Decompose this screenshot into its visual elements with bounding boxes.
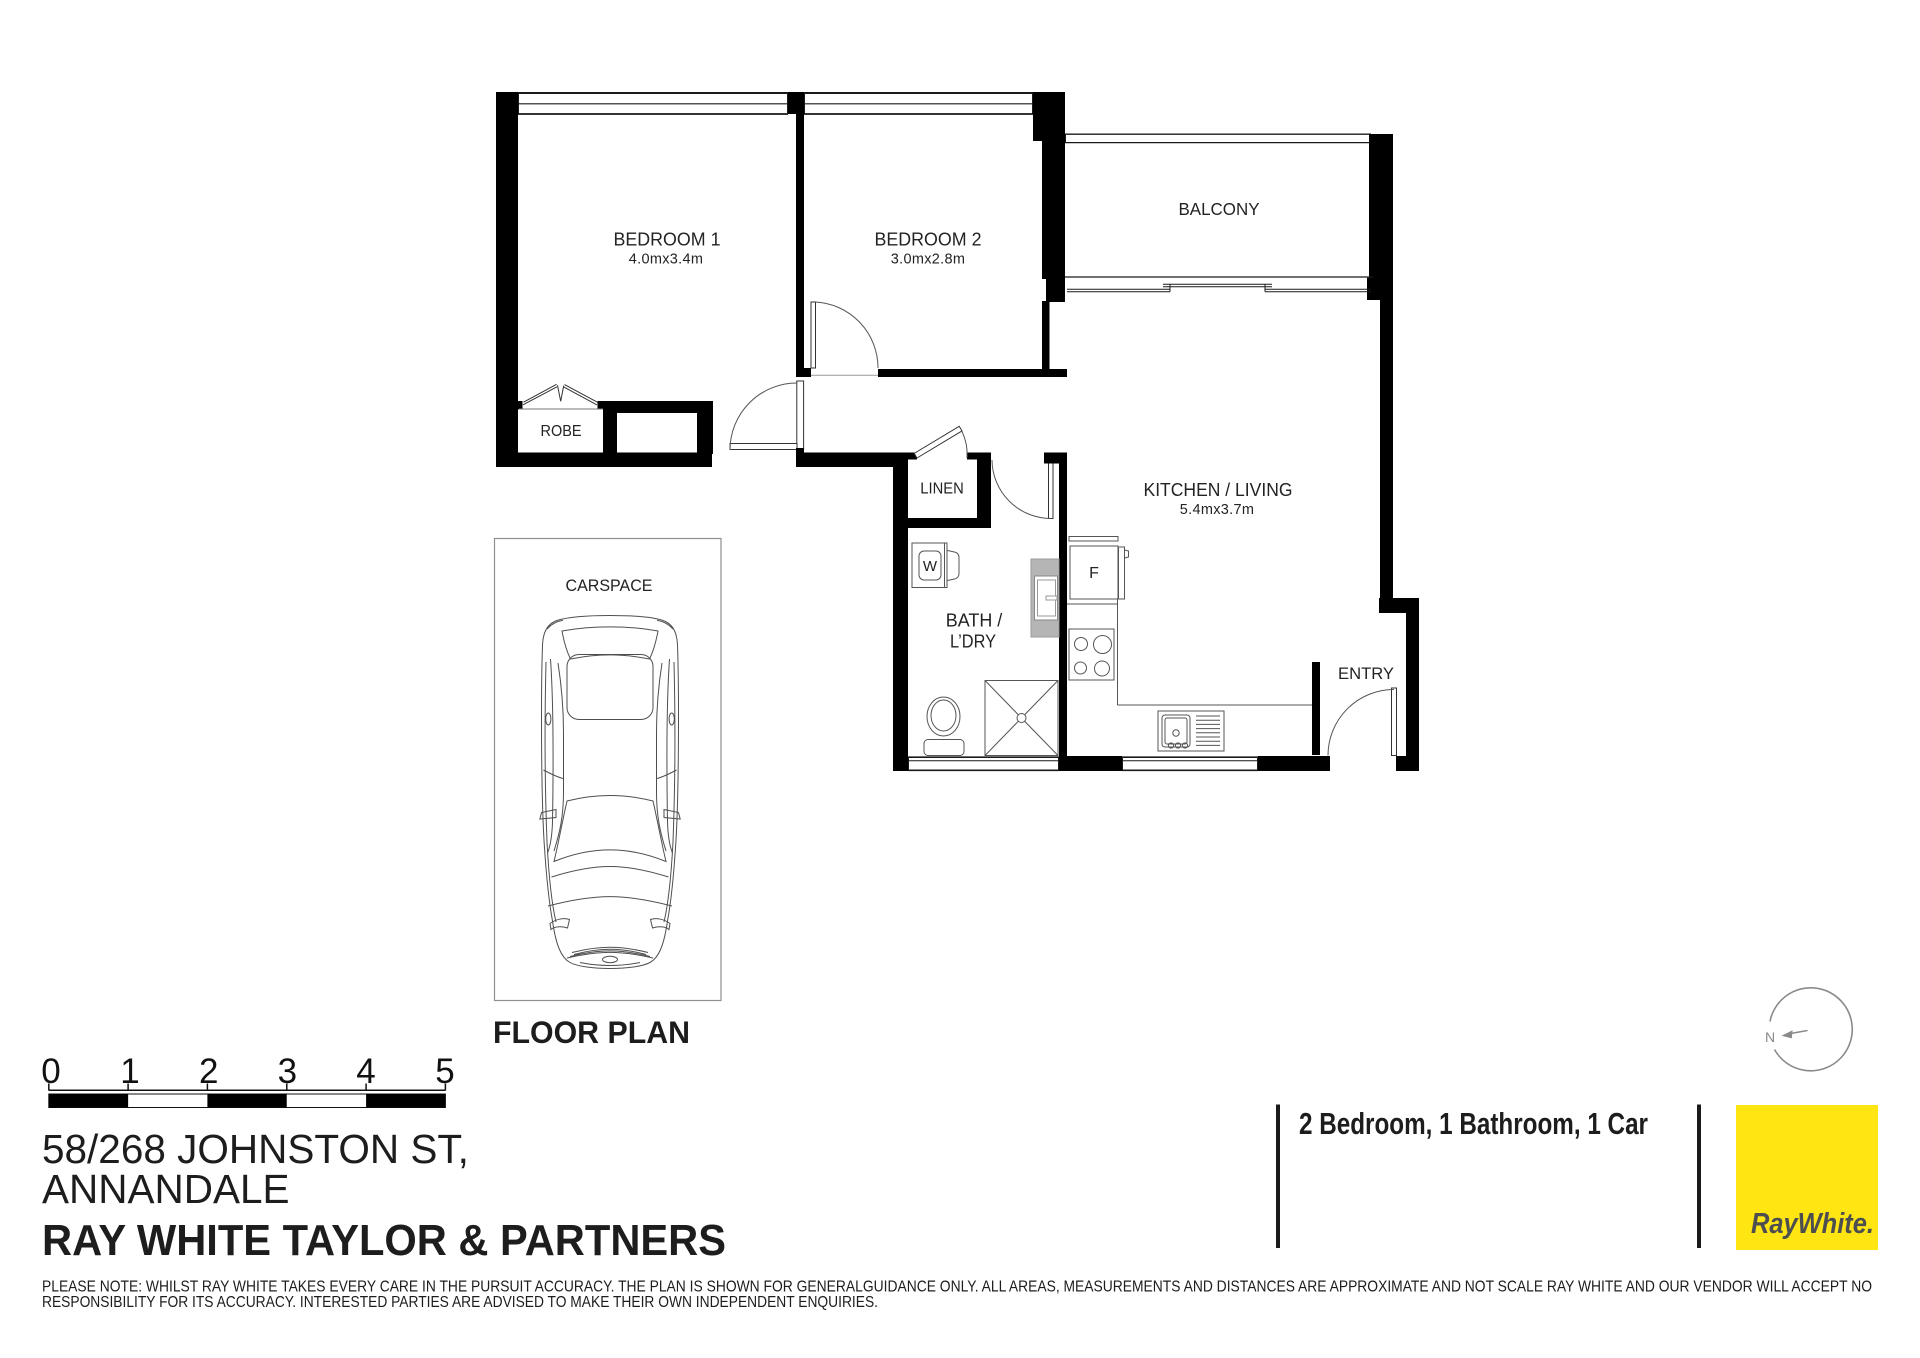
svg-text:1: 1: [120, 1052, 139, 1091]
svg-text:RESPONSIBILITY FOR ITS ACCURAC: RESPONSIBILITY FOR ITS ACCURACY. INTERES…: [42, 1294, 878, 1311]
svg-text:ROBE: ROBE: [541, 423, 582, 440]
svg-text:ENTRY: ENTRY: [1338, 664, 1394, 683]
svg-text:BALCONY: BALCONY: [1179, 199, 1260, 219]
svg-text:3.0mx2.8m: 3.0mx2.8m: [891, 252, 965, 268]
svg-text:BEDROOM 2: BEDROOM 2: [875, 230, 982, 250]
svg-text:N: N: [1765, 1029, 1775, 1045]
svg-text:L’DRY: L’DRY: [950, 632, 996, 652]
svg-text:KITCHEN / LIVING: KITCHEN / LIVING: [1144, 480, 1293, 500]
svg-text:4.0mx3.4m: 4.0mx3.4m: [629, 252, 703, 268]
svg-text:PLEASE NOTE: WHILST RAY WHITE: PLEASE NOTE: WHILST RAY WHITE TAKES EVER…: [42, 1279, 1872, 1296]
svg-text:LINEN: LINEN: [920, 481, 964, 498]
svg-text:BEDROOM 1: BEDROOM 1: [614, 230, 721, 250]
svg-text:RAY WHITE TAYLOR & PARTNERS: RAY WHITE TAYLOR & PARTNERS: [42, 1216, 726, 1265]
svg-text:BATH /: BATH /: [946, 611, 1003, 631]
svg-text:CARSPACE: CARSPACE: [566, 576, 653, 595]
svg-text:F: F: [1089, 565, 1099, 582]
svg-text:ANNANDALE: ANNANDALE: [42, 1166, 290, 1212]
svg-text:5.4mx3.7m: 5.4mx3.7m: [1180, 502, 1254, 518]
svg-text:FLOOR PLAN: FLOOR PLAN: [493, 1014, 690, 1050]
svg-text:0: 0: [41, 1052, 60, 1091]
svg-text:W: W: [923, 558, 938, 575]
svg-text:RayWhite.: RayWhite.: [1751, 1208, 1874, 1240]
svg-text:2: 2: [199, 1052, 218, 1091]
svg-text:2 Bedroom, 1 Bathroom, 1 Car: 2 Bedroom, 1 Bathroom, 1 Car: [1299, 1107, 1648, 1141]
